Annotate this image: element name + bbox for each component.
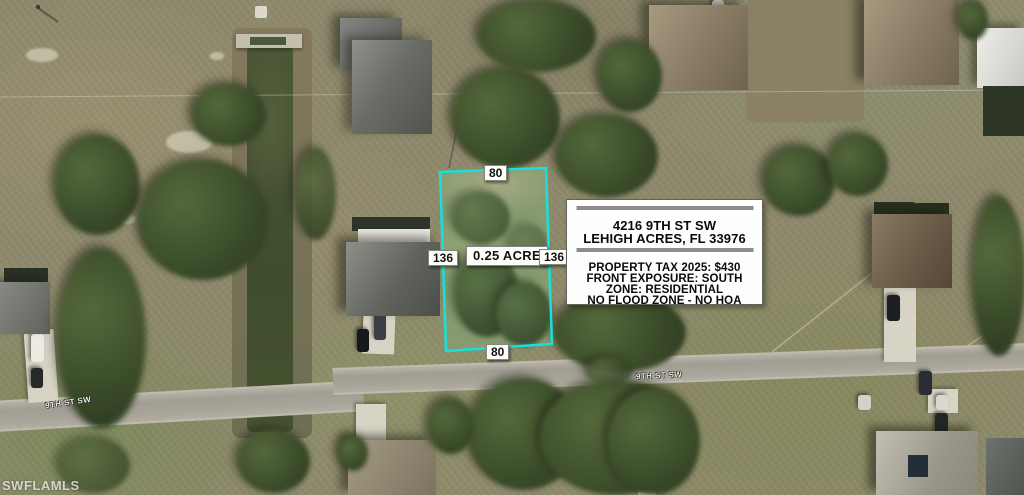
aerial-map: 80 136 0.25 ACRE 136 80 ================… (0, 0, 1024, 495)
tree (556, 115, 658, 197)
car (31, 368, 43, 388)
dimension-label-front: 80 (484, 165, 507, 181)
property-info-box: ========================================… (566, 199, 763, 305)
mls-watermark: SWFLAMLS (2, 478, 80, 493)
tree (763, 146, 835, 216)
sand-patch (26, 48, 58, 62)
tree (192, 84, 266, 146)
car (357, 329, 369, 352)
white-patch (255, 6, 267, 18)
dimension-label-right: 136 (539, 249, 569, 265)
house-top-center-wing (352, 40, 432, 134)
tree (238, 430, 310, 493)
tree (428, 398, 474, 454)
tree (958, 0, 988, 40)
house-right-mid-roof (872, 214, 952, 288)
house-bottom-left-roof (0, 282, 50, 334)
house-mid-left-roof (346, 242, 440, 316)
tree (296, 148, 336, 240)
tree (496, 282, 552, 346)
car (936, 395, 948, 410)
car (858, 395, 871, 410)
tree (452, 192, 510, 244)
dimension-label-left: 136 (428, 250, 458, 266)
car (374, 314, 386, 340)
tree (608, 388, 700, 495)
house-top-right-a (649, 5, 748, 90)
house-right-edge-pool-screen (983, 86, 1024, 136)
tree (973, 196, 1024, 356)
house-bottom-corner (986, 438, 1024, 495)
tree (55, 135, 140, 235)
car (919, 371, 932, 395)
tree (478, 0, 596, 72)
vacant-lot (746, 0, 864, 122)
tree (338, 435, 368, 471)
solar-panel (908, 455, 928, 477)
tree (138, 160, 268, 280)
tree (598, 40, 662, 112)
address-line2: LEHIGH ACRES, FL 33976 (567, 234, 762, 245)
parcel-area-label: 0.25 ACRE (466, 246, 548, 266)
address-line1: 4216 9TH ST SW (567, 221, 762, 232)
canal-weir-gate (250, 37, 286, 45)
divider-line: ======================================== (567, 206, 762, 213)
house-right-edge-roof (977, 28, 1024, 88)
dimension-label-rear: 80 (486, 344, 509, 360)
tree (828, 134, 888, 196)
flood-hoa: NO FLOOD ZONE - NO HOA (567, 296, 762, 305)
tree (452, 68, 560, 168)
sand-patch (210, 52, 224, 60)
rv-vehicle (31, 334, 44, 362)
divider-line: ======================================== (567, 248, 762, 255)
tree (585, 358, 633, 384)
car (887, 295, 900, 321)
house-top-right-b (864, 0, 959, 85)
